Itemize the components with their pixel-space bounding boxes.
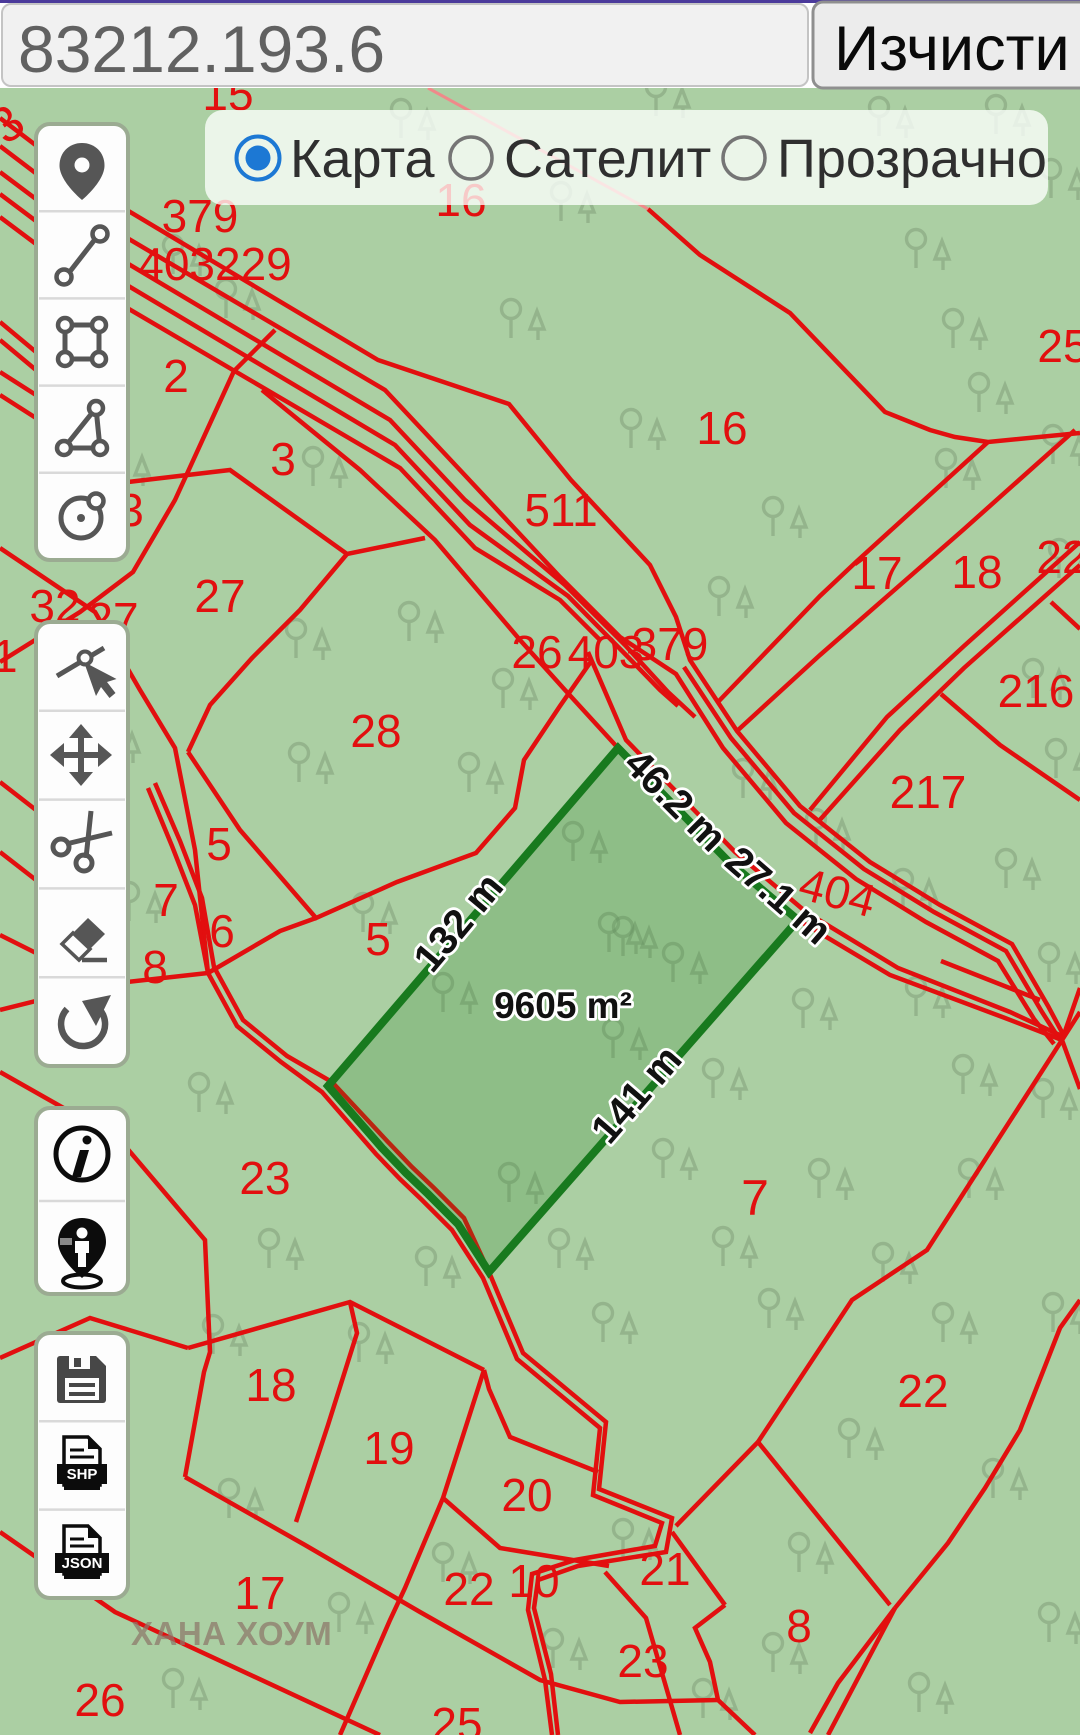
svg-text:7: 7 xyxy=(153,874,179,926)
svg-text:217: 217 xyxy=(890,766,967,818)
svg-text:18: 18 xyxy=(245,1359,296,1411)
svg-text:JSON: JSON xyxy=(62,1555,103,1572)
svg-text:9605 m²: 9605 m² xyxy=(494,985,632,1026)
svg-text:8: 8 xyxy=(786,1600,812,1652)
svg-text:403229: 403229 xyxy=(138,238,292,290)
svg-text:Прозрачно: Прозрачно xyxy=(777,129,1047,189)
svg-text:23: 23 xyxy=(617,1635,668,1687)
svg-text:511: 511 xyxy=(524,484,597,536)
svg-text:Сателит: Сателит xyxy=(504,129,711,189)
svg-text:5: 5 xyxy=(206,818,232,870)
svg-text:26: 26 xyxy=(74,1674,125,1726)
svg-text:22: 22 xyxy=(443,1563,494,1615)
svg-text:379: 379 xyxy=(632,618,709,670)
svg-text:Изчисти: Изчисти xyxy=(834,14,1070,84)
svg-text:10: 10 xyxy=(508,1555,559,1607)
svg-text:28: 28 xyxy=(350,705,401,757)
svg-text:23: 23 xyxy=(239,1152,290,1204)
svg-text:25: 25 xyxy=(431,1698,482,1735)
svg-text:Карта: Карта xyxy=(290,129,435,189)
svg-text:7: 7 xyxy=(741,1170,769,1226)
svg-text:16: 16 xyxy=(696,402,747,454)
svg-text:2: 2 xyxy=(163,350,189,402)
svg-text:SHP: SHP xyxy=(67,1466,98,1483)
svg-text:3: 3 xyxy=(270,433,296,485)
svg-text:21: 21 xyxy=(0,630,18,682)
svg-text:17: 17 xyxy=(851,547,902,599)
svg-text:20: 20 xyxy=(501,1469,552,1521)
svg-text:26: 26 xyxy=(511,626,562,678)
svg-text:216: 216 xyxy=(998,665,1075,717)
svg-text:5: 5 xyxy=(365,913,391,965)
svg-text:83212.193.6: 83212.193.6 xyxy=(18,12,385,86)
svg-text:27: 27 xyxy=(194,570,245,622)
svg-text:8: 8 xyxy=(142,941,168,993)
svg-text:ХАНА ХОУМ: ХАНА ХОУМ xyxy=(131,1615,332,1652)
svg-text:22: 22 xyxy=(897,1365,948,1417)
svg-text:6: 6 xyxy=(209,905,235,957)
svg-text:19: 19 xyxy=(363,1422,414,1474)
svg-text:22: 22 xyxy=(1036,531,1080,583)
svg-text:17: 17 xyxy=(234,1567,285,1619)
svg-text:25: 25 xyxy=(1037,320,1080,372)
svg-text:18: 18 xyxy=(951,546,1002,598)
svg-text:21: 21 xyxy=(639,1543,690,1595)
